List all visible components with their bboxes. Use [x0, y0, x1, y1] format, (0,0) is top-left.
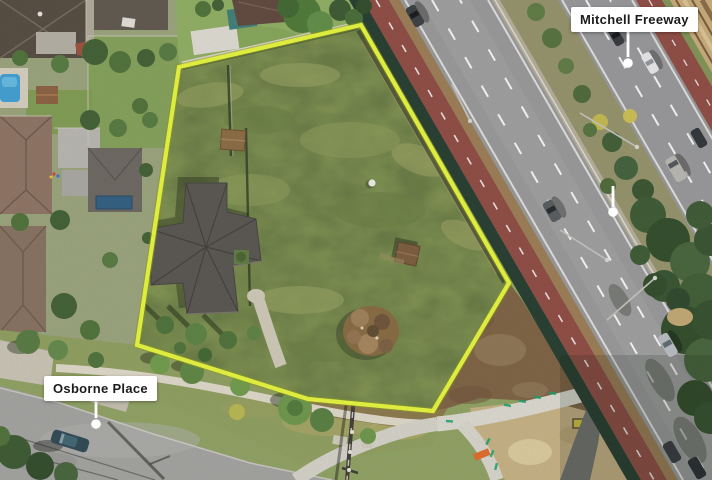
street-label-text: Osborne Place — [53, 381, 148, 396]
freeway-label-text: Mitchell Freeway — [580, 12, 689, 27]
aerial-scene — [0, 0, 712, 480]
freeway-label: Mitchell Freeway — [571, 7, 698, 32]
street-label: Osborne Place — [44, 376, 157, 401]
leader-dot — [608, 207, 618, 217]
leader-dot — [91, 419, 101, 429]
leader-dot — [623, 58, 633, 68]
aerial-photo: Mitchell Freeway Osborne Place — [0, 0, 712, 480]
